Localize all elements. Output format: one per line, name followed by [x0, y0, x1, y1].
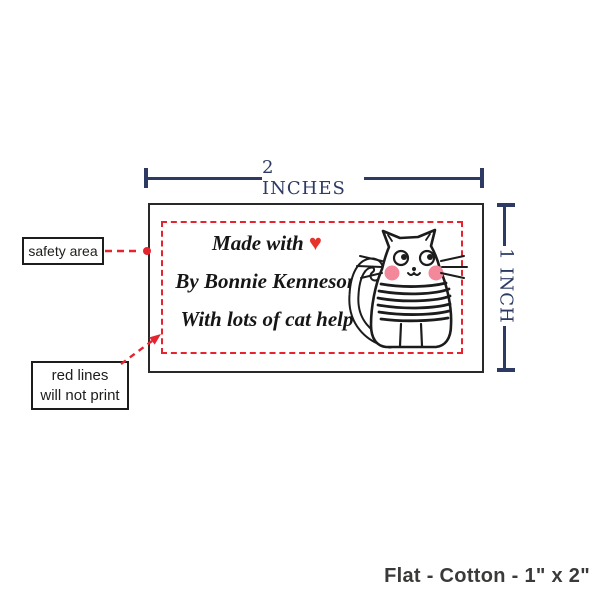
height-dimension-cap-bottom [497, 368, 515, 372]
label-text-block: Made with ♥ By Bonnie Kenneson With lots… [154, 224, 380, 338]
height-dimension-label: 1 INCH [485, 246, 527, 326]
red-lines-label-line-2: will not print [40, 386, 119, 406]
label-text-line-3: With lots of cat help [154, 300, 380, 338]
cat-body [371, 230, 451, 347]
safety-area-label: safety area [28, 243, 97, 259]
width-dimension-cap-left [144, 168, 148, 188]
red-lines-label-line-1: red lines [52, 366, 109, 386]
heart-icon: ♥ [309, 230, 322, 255]
label-text-line-1: Made with ♥ [154, 224, 380, 262]
width-dimension-cap-right [480, 168, 484, 188]
callout-safety-area: safety area [22, 237, 104, 265]
cat-cheek-left [385, 266, 400, 281]
label-preview: Made with ♥ By Bonnie Kenneson With lots… [148, 203, 484, 373]
height-dimension-cap-top [497, 203, 515, 207]
made-with-text: Made with [212, 231, 304, 255]
width-dimension-label: 2 INCHES [262, 158, 364, 197]
height-dimension-text: 1 INCH [496, 248, 517, 324]
cat-illustration [348, 227, 472, 353]
label-text-line-2: By Bonnie Kenneson [154, 262, 380, 300]
width-dimension-text: 2 INCHES [262, 157, 364, 199]
safety-area-arrow [105, 247, 151, 255]
callout-red-lines: red lines will not print [31, 361, 129, 410]
footer-spec-text: Flat - Cotton - 1" x 2" [384, 565, 590, 588]
